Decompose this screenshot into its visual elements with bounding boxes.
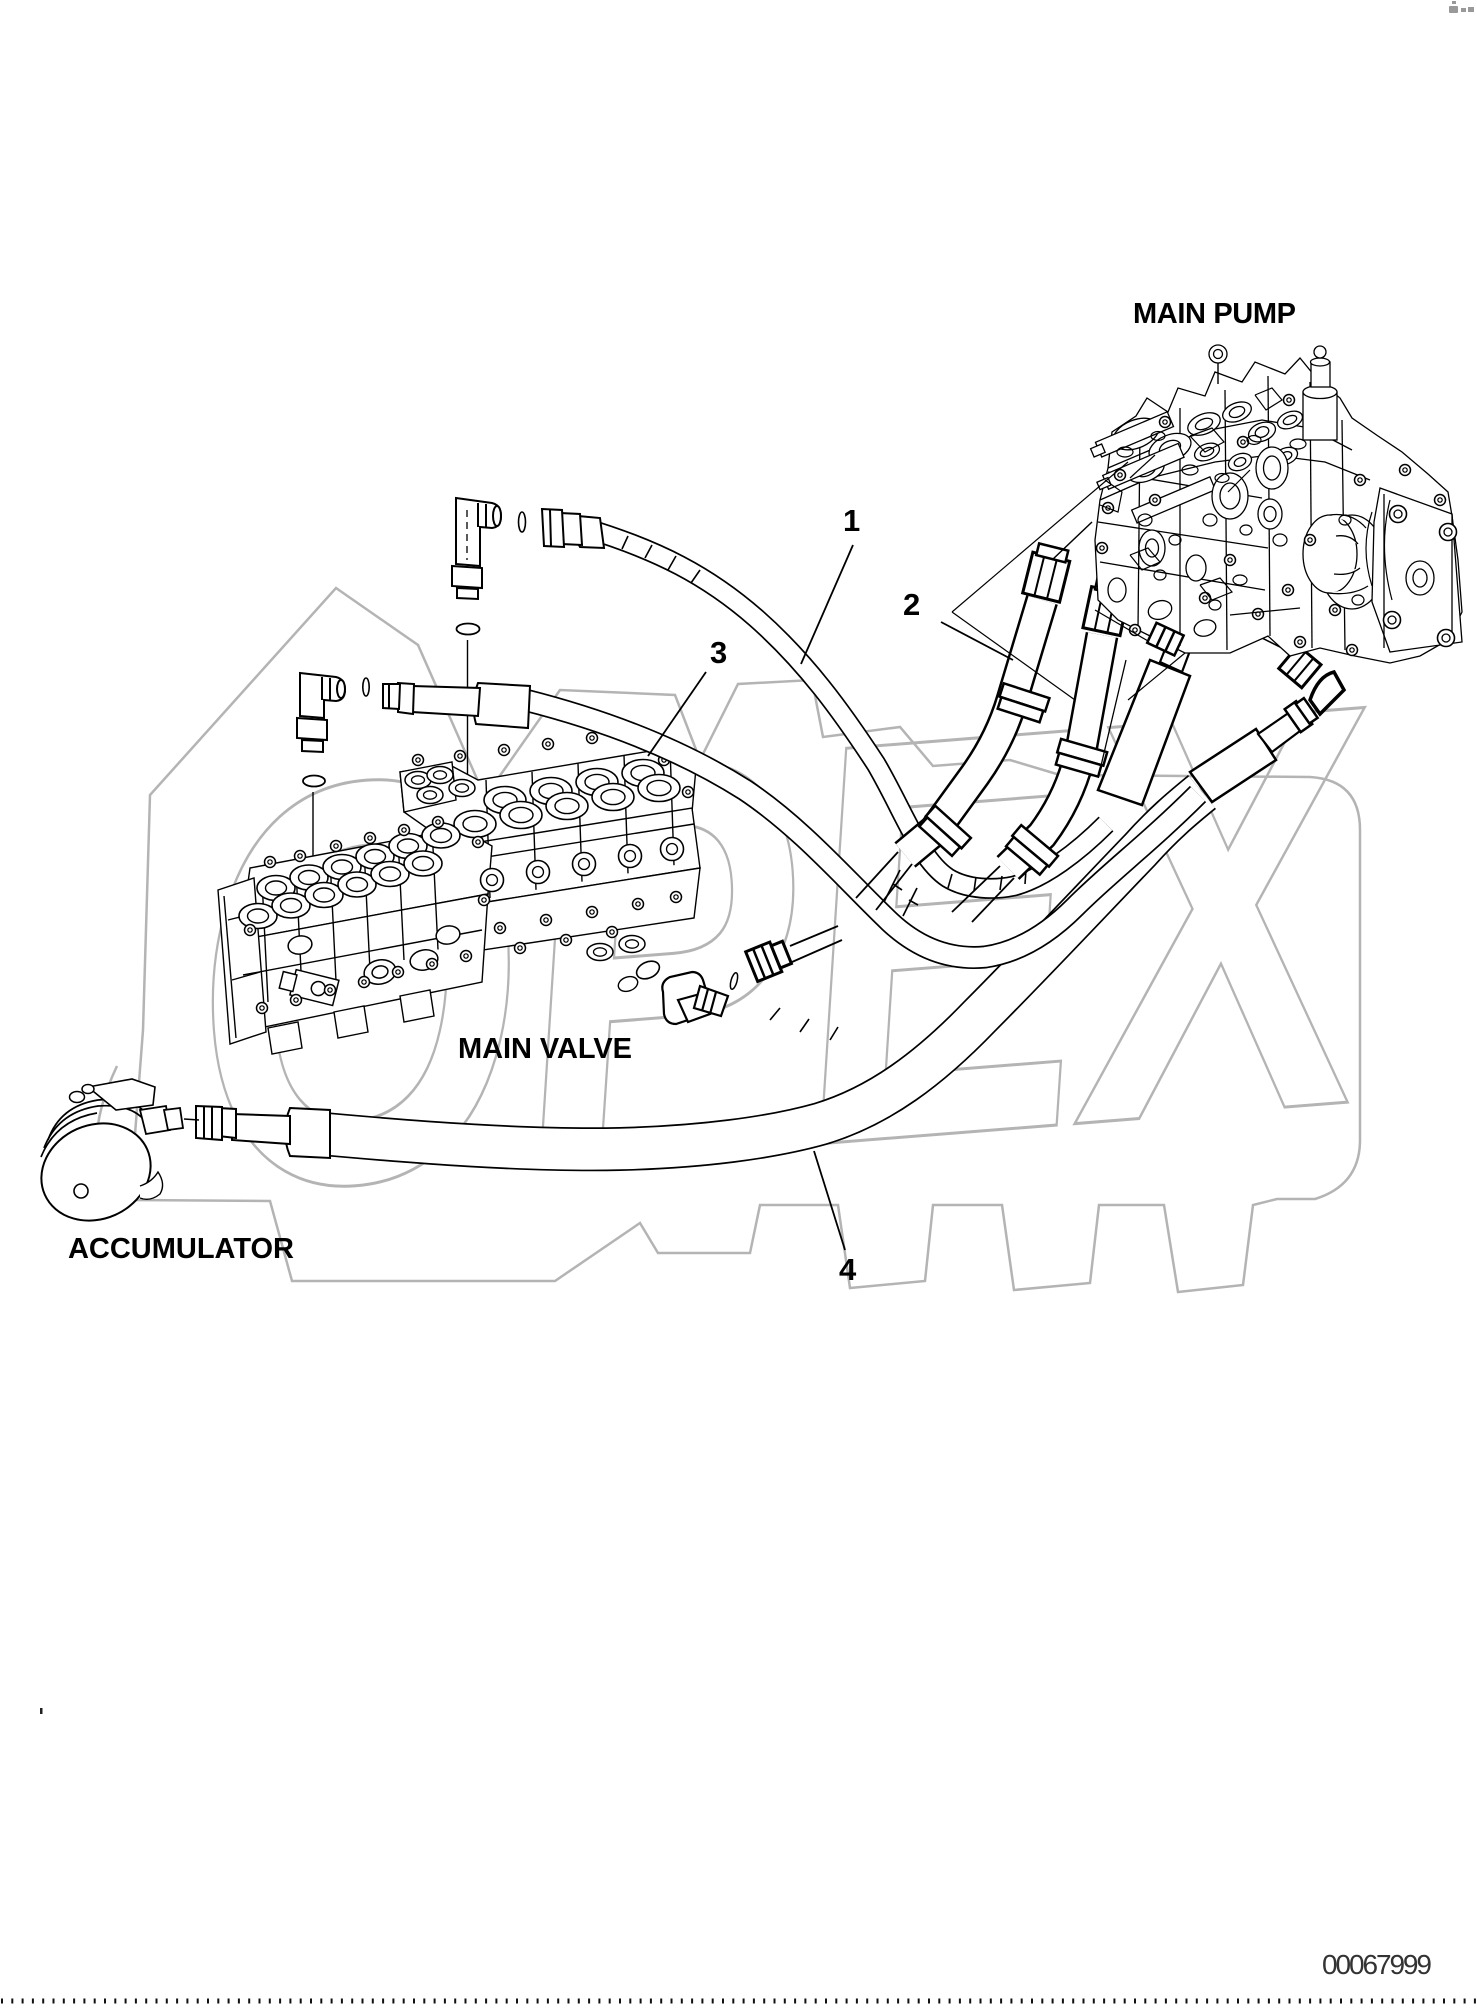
svg-text:4: 4 xyxy=(839,1252,857,1287)
svg-text:00067999: 00067999 xyxy=(1322,1949,1432,1980)
svg-text:MAIN PUMP: MAIN PUMP xyxy=(1133,298,1296,330)
svg-text:1: 1 xyxy=(843,503,860,538)
svg-text:ACCUMULATOR: ACCUMULATOR xyxy=(68,1233,294,1265)
svg-text:3: 3 xyxy=(710,635,727,670)
svg-text:2: 2 xyxy=(903,587,920,622)
svg-text:MAIN VALVE: MAIN VALVE xyxy=(458,1033,632,1065)
